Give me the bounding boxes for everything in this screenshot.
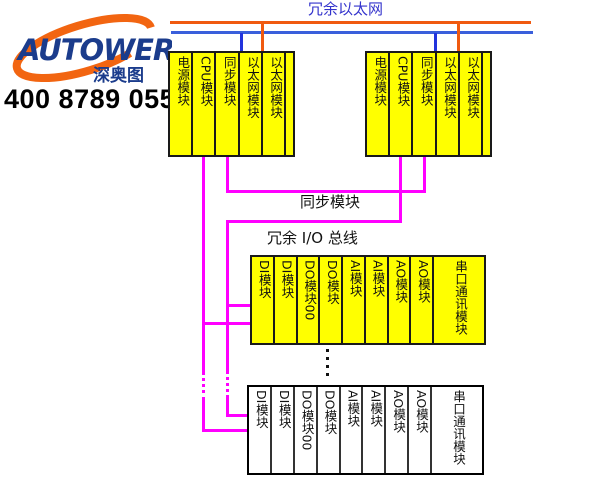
ai-module-slot: AI模块	[363, 387, 386, 473]
power-module-slot: 电源模块	[367, 53, 390, 155]
ethernet-module-slot: 以太网模块	[437, 53, 460, 155]
ao-module-slot: AO模块	[389, 257, 412, 343]
io-rack-1: DI模块 DI模块 DO模块00 DO模块 AI模块 AI模块 AO模块 AO模…	[250, 255, 486, 345]
io-bus-a-stub-rack2	[202, 429, 248, 432]
ao-module-slot: AO模块	[386, 387, 409, 473]
io-rack-2: DI模块 DI模块 DO模块00 DO模块 AI模块 AI模块 AO模块 AO模…	[247, 385, 484, 475]
io-bus-a-continuation-dashes	[202, 371, 205, 401]
ethernet-module-slot: 以太网模块	[240, 53, 263, 155]
ethernet-bus-b-line	[171, 31, 533, 34]
io-bus-label: 冗余 I/O 总线	[267, 230, 358, 247]
controller-rack-2: 电源模块 CPU模块 同步模块 以太网模块 以太网模块	[365, 51, 492, 157]
sync-link-label: 同步模块	[300, 194, 360, 211]
serial-comm-module-slot: 串口通讯模块	[432, 387, 482, 473]
ai-module-slot: AI模块	[366, 257, 389, 343]
brand-cn-name: 深奥图	[93, 65, 144, 86]
ai-module-slot: AI模块	[343, 257, 366, 343]
continuation-ellipsis-icon	[326, 349, 329, 381]
cpu-module-slot: CPU模块	[193, 53, 216, 155]
di-module-slot: DI模块	[249, 387, 272, 473]
phone-number: 400 8789 055	[4, 84, 175, 115]
io-bus-a-vertical-lower	[202, 401, 205, 432]
sync-link-left-vertical	[226, 157, 229, 193]
power-module-slot: 电源模块	[170, 53, 193, 155]
di-module-slot: DI模块	[252, 257, 275, 343]
io-bus-b-vertical	[226, 220, 229, 371]
sync-module-slot: 同步模块	[216, 53, 239, 155]
ai-module-slot: AI模块	[341, 387, 364, 473]
brand-name: AUTOWER	[16, 33, 172, 67]
rack2-blue-drop-line	[434, 33, 437, 52]
sync-module-slot: 同步模块	[413, 53, 436, 155]
ethernet-module-slot: 以太网模块	[460, 53, 483, 155]
do-module-slot: DO模块00	[295, 387, 318, 473]
ao-module-slot: AO模块	[409, 387, 432, 473]
serial-comm-module-slot: 串口通讯模块	[434, 257, 484, 343]
io-bus-b-stub-rack1	[226, 304, 250, 307]
controller-rack-1: 电源模块 CPU模块 同步模块 以太网模块 以太网模块	[168, 51, 295, 157]
di-module-slot: DI模块	[275, 257, 298, 343]
diagram-canvas: AUTOWER 深奥图 400 8789 055 冗余以太网 电源模块 CPU模…	[0, 0, 600, 480]
ethernet-module-slot: 以太网模块	[263, 53, 286, 155]
rack2-orange-drop-line	[457, 23, 460, 52]
empty-slot	[286, 53, 293, 155]
io-bus-b-horizontal	[226, 220, 402, 223]
io-bus-b-drop-from-rack2	[399, 157, 402, 223]
io-bus-b-stub-rack2	[226, 414, 248, 417]
do-module-slot: DO模块00	[298, 257, 321, 343]
ethernet-bus-label: 冗余以太网	[308, 1, 383, 18]
empty-slot	[483, 53, 490, 155]
di-module-slot: DI模块	[272, 387, 295, 473]
cpu-module-slot: CPU模块	[390, 53, 413, 155]
do-module-slot: DO模块	[320, 257, 343, 343]
rack1-orange-drop-line	[261, 23, 264, 52]
io-bus-a-vertical	[202, 157, 205, 371]
sync-link-right-vertical	[423, 157, 426, 193]
do-module-slot: DO模块	[318, 387, 341, 473]
rack1-blue-drop-line	[240, 33, 243, 52]
ao-module-slot: AO模块	[411, 257, 434, 343]
ethernet-bus-a-line	[170, 21, 531, 24]
autower-logo: AUTOWER 深奥图	[2, 10, 172, 88]
io-bus-b-continuation-dashes	[226, 371, 229, 398]
